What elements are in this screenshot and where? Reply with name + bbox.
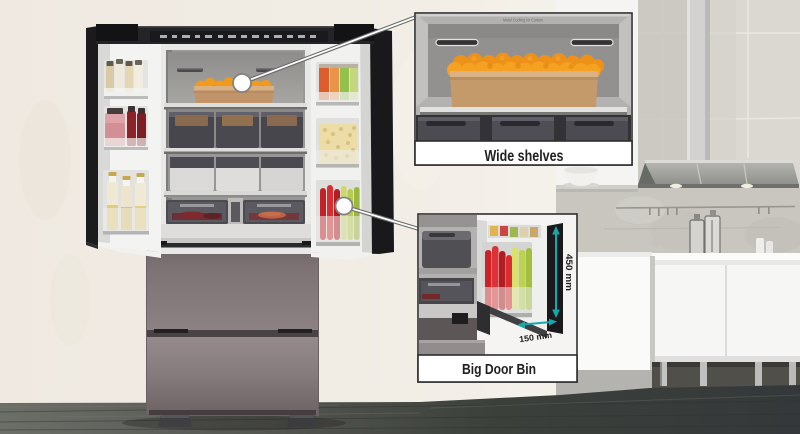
- svg-text:Big Door Bin: Big Door Bin: [462, 361, 536, 378]
- svg-text:Metal Cooling Air Curtain: Metal Cooling Air Curtain: [503, 18, 544, 23]
- svg-text:Wide shelves: Wide shelves: [485, 148, 564, 165]
- svg-text:450 mm: 450 mm: [564, 254, 574, 291]
